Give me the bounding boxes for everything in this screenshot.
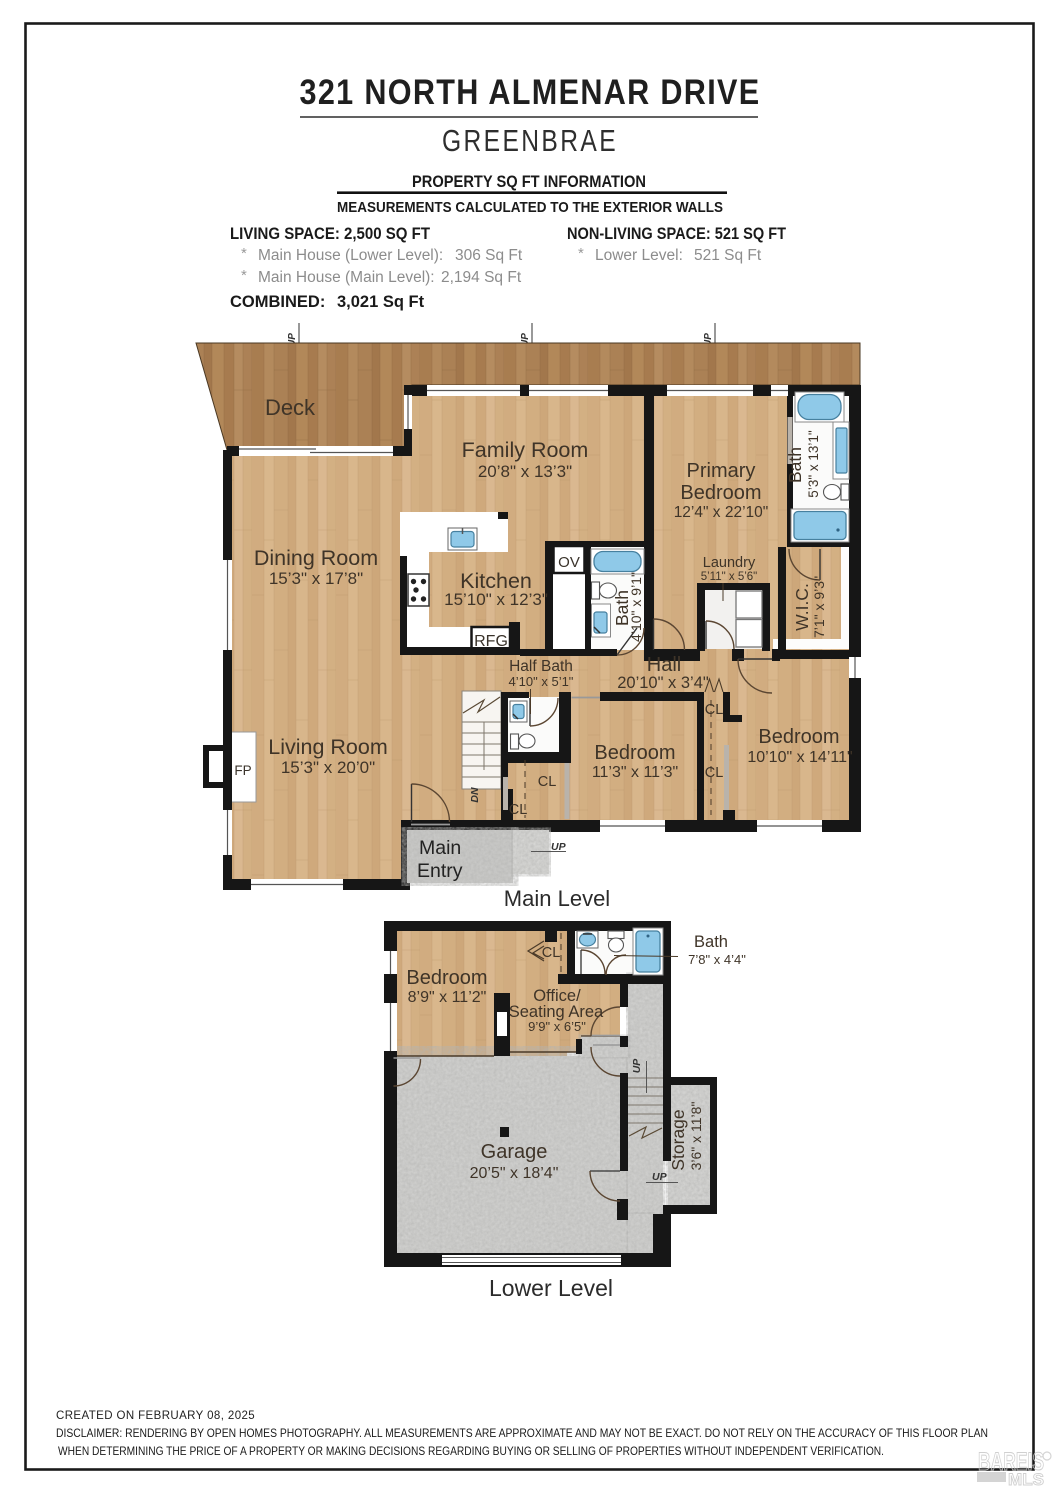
svg-text:PROPERTY SQ FT INFORMATION: PROPERTY SQ FT INFORMATION (412, 173, 646, 191)
svg-text:11’3" x 11’3": 11’3" x 11’3" (592, 764, 678, 781)
svg-text:UP: UP (631, 1058, 643, 1074)
svg-text:WHEN DETERMINING THE PRICE OF: WHEN DETERMINING THE PRICE OF A PROPERTY… (58, 1444, 884, 1458)
svg-text:20’5" x 18’4": 20’5" x 18’4" (470, 1165, 559, 1182)
svg-text:Primary: Primary (687, 460, 756, 482)
svg-text:Main House (Main Level):: Main House (Main Level): (258, 269, 435, 286)
svg-text:MEASUREMENTS CALCULATED TO THE: MEASUREMENTS CALCULATED TO THE EXTERIOR … (337, 199, 723, 216)
svg-text:CL: CL (509, 802, 528, 818)
svg-text:Garage: Garage (481, 1141, 548, 1163)
svg-text:*: * (241, 245, 247, 262)
svg-text:20’10" x 3’4": 20’10" x 3’4" (617, 674, 709, 692)
svg-text:CL: CL (542, 945, 561, 961)
svg-text:Hall: Hall (647, 654, 681, 676)
svg-text:Laundry: Laundry (703, 555, 756, 571)
svg-text:OV: OV (558, 554, 580, 571)
svg-text:Lower Level: Lower Level (489, 1275, 613, 1301)
svg-text:W.I.C.: W.I.C. (792, 583, 812, 631)
svg-text:Main House (Lower Level):: Main House (Lower Level): (258, 247, 443, 264)
svg-text:CL: CL (538, 774, 557, 790)
svg-text:COMBINED:: COMBINED: (230, 293, 325, 311)
svg-text:20’8" x 13’3": 20’8" x 13’3" (478, 462, 572, 481)
svg-text:LIVING SPACE: 2,500 SQ FT: LIVING SPACE: 2,500 SQ FT (230, 225, 430, 243)
svg-text:2,194 Sq Ft: 2,194 Sq Ft (441, 269, 522, 286)
svg-text:7’8" x 4’4": 7’8" x 4’4" (688, 952, 746, 967)
svg-text:15’10" x 12’3": 15’10" x 12’3" (444, 590, 548, 609)
svg-text:CL: CL (705, 702, 724, 718)
svg-text:Entry: Entry (417, 860, 463, 882)
svg-text:NON-LIVING SPACE: 521 SQ FT: NON-LIVING SPACE: 521 SQ FT (567, 225, 786, 243)
svg-text:306 Sq Ft: 306 Sq Ft (455, 247, 523, 264)
svg-text:7’1" x 9’3": 7’1" x 9’3" (811, 576, 827, 638)
svg-text:9’9" x 6’5": 9’9" x 6’5" (528, 1019, 586, 1034)
svg-text:Lower Level:: Lower Level: (595, 247, 683, 264)
svg-text:15’3" x 17’8": 15’3" x 17’8" (269, 569, 363, 588)
svg-text:Family Room: Family Room (462, 438, 589, 462)
svg-text:Bedroom: Bedroom (680, 482, 761, 504)
svg-text:Bath: Bath (785, 447, 805, 483)
svg-text:Bedroom: Bedroom (758, 726, 839, 748)
svg-text:FP: FP (234, 763, 251, 778)
svg-text:CL: CL (705, 765, 724, 781)
svg-text:4’10" x 5’1": 4’10" x 5’1" (509, 674, 574, 689)
svg-text:MLS: MLS (1008, 1470, 1044, 1489)
svg-text:10’10" x 14’11": 10’10" x 14’11" (747, 749, 852, 766)
svg-text:CREATED ON FEBRUARY 08, 2025: CREATED ON FEBRUARY 08, 2025 (56, 1410, 255, 1422)
svg-text:*: * (578, 245, 584, 262)
svg-text:*: * (241, 267, 247, 284)
svg-text:UP: UP (652, 1171, 668, 1183)
svg-text:5’3" x 13’1": 5’3" x 13’1" (806, 430, 821, 498)
svg-text:3’6" x 11’8": 3’6" x 11’8" (688, 1102, 704, 1171)
svg-text:Living Room: Living Room (268, 735, 388, 759)
svg-text:DISCLAIMER: RENDERING BY OPEN: DISCLAIMER: RENDERING BY OPEN HOMES PHOT… (56, 1426, 988, 1440)
svg-text:Storage: Storage (668, 1109, 688, 1170)
svg-text:521 Sq Ft: 521 Sq Ft (694, 247, 762, 264)
svg-text:12’4" x 22’10": 12’4" x 22’10" (674, 504, 769, 521)
svg-text:Bedroom: Bedroom (594, 742, 675, 764)
svg-text:4’10" x 9’1": 4’10" x 9’1" (628, 572, 644, 642)
svg-text:5’11" x 5’6": 5’11" x 5’6" (701, 571, 758, 583)
svg-text:Half Bath: Half Bath (509, 658, 573, 675)
svg-text:Dining Room: Dining Room (254, 546, 378, 570)
svg-text:Main Level: Main Level (504, 886, 610, 911)
svg-text:8’9" x 11’2": 8’9" x 11’2" (408, 989, 487, 1006)
svg-text:15’3" x 20’0": 15’3" x 20’0" (281, 758, 375, 777)
svg-text:Bath: Bath (694, 933, 728, 951)
svg-text:3,021 Sq Ft: 3,021 Sq Ft (337, 293, 425, 311)
svg-text:Main: Main (419, 837, 461, 859)
svg-text:Deck: Deck (265, 395, 316, 420)
svg-text:Bedroom: Bedroom (406, 967, 487, 989)
svg-text:GREENBRAE: GREENBRAE (442, 123, 618, 158)
svg-text:DN: DN (469, 787, 481, 803)
svg-text:321 NORTH ALMENAR DRIVE: 321 NORTH ALMENAR DRIVE (300, 73, 761, 112)
